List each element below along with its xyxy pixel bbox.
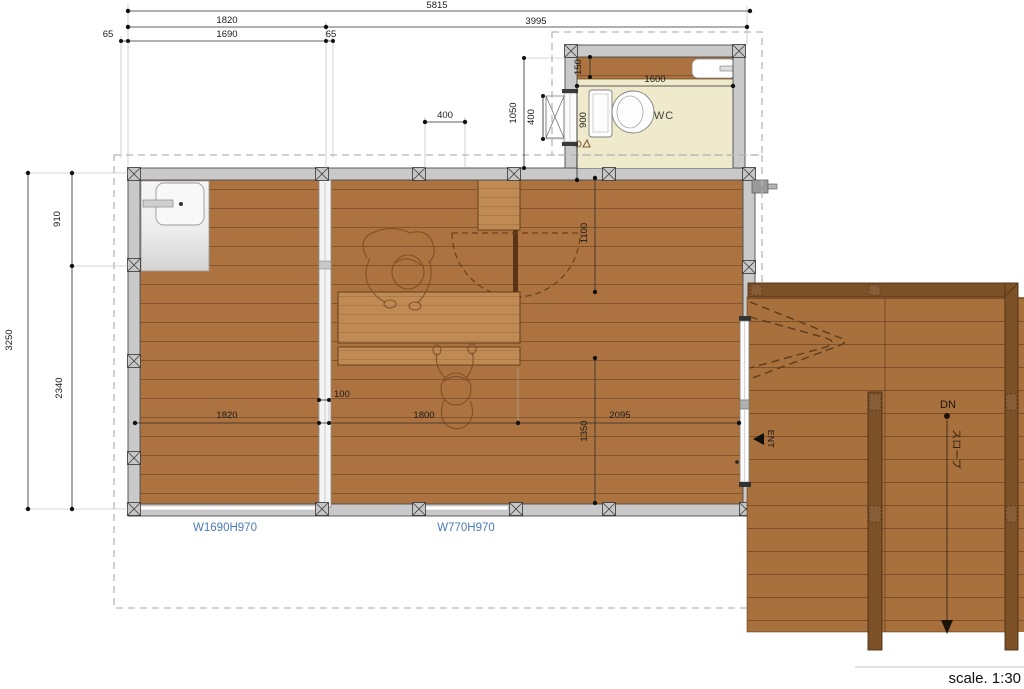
scale-label: scale. 1:30 [948, 670, 1021, 687]
door-divider-panel [513, 230, 518, 292]
dim-wc-inner-depth: 900 [578, 112, 589, 128]
dim-opening-width: 1100 [579, 223, 590, 243]
dim-mid-depth: 1350 [579, 420, 590, 441]
dim-room-mid-width: 1800 [413, 410, 434, 421]
dim-side-top: 910 [52, 211, 63, 227]
lift-box [546, 96, 564, 138]
dim-top-400: 400 [437, 110, 453, 121]
dn-label: DN [940, 399, 956, 411]
partition-sliding-panel [319, 180, 331, 507]
ent-label: ENT [766, 430, 776, 449]
dim-room-right-width: 2095 [609, 410, 630, 421]
window-w1690 [140, 506, 320, 510]
deck-ramp: DN スロープ [747, 283, 1024, 650]
scale-note: scale. 1:30 [855, 667, 1024, 687]
dim-wc-inner-width: 1600 [644, 74, 665, 85]
window-label-center: W770H970 [437, 522, 495, 534]
dim-side-overall: 3250 [4, 329, 15, 350]
dim-eave-left: 65 [103, 29, 114, 40]
dim-overall-width: 5815 [426, 0, 447, 11]
kitchen-counter [141, 181, 209, 271]
dim-partition-gap: 100 [334, 389, 350, 400]
dim-lift-door: 400 [526, 109, 537, 125]
dim-wc-shelf-depth: 150 [573, 59, 584, 75]
bench [338, 347, 520, 365]
window-w770 [424, 506, 508, 510]
wc-room-label: WC [654, 110, 674, 122]
dim-room-left-width: 1820 [216, 410, 237, 421]
dining-table [338, 292, 520, 343]
window-label-left: W1690H970 [193, 522, 257, 534]
toilet [589, 90, 654, 137]
dim-window-width: 1690 [216, 29, 237, 40]
dim-eave-right: 65 [326, 29, 337, 40]
wc-door [562, 89, 578, 146]
door-handle-icon [735, 460, 739, 464]
dim-lift-clear: 1050 [508, 102, 519, 123]
dim-bay-left: 1820 [216, 15, 237, 26]
wc-faucet-icon [720, 66, 733, 71]
slope-label: スロープ [950, 429, 962, 468]
dim-side-bottom: 2340 [54, 377, 65, 398]
floor-plan-canvas: DN スロープ ENT [0, 0, 1024, 689]
outdoor-fixture [752, 180, 777, 193]
dim-bay-right: 3995 [525, 16, 546, 27]
floor-plan-svg: DN スロープ ENT [0, 0, 1024, 689]
deck-floor-edge [1018, 297, 1024, 632]
deck-rail-right [1005, 283, 1018, 650]
faucet-icon [143, 200, 173, 207]
service-counter [478, 180, 520, 230]
